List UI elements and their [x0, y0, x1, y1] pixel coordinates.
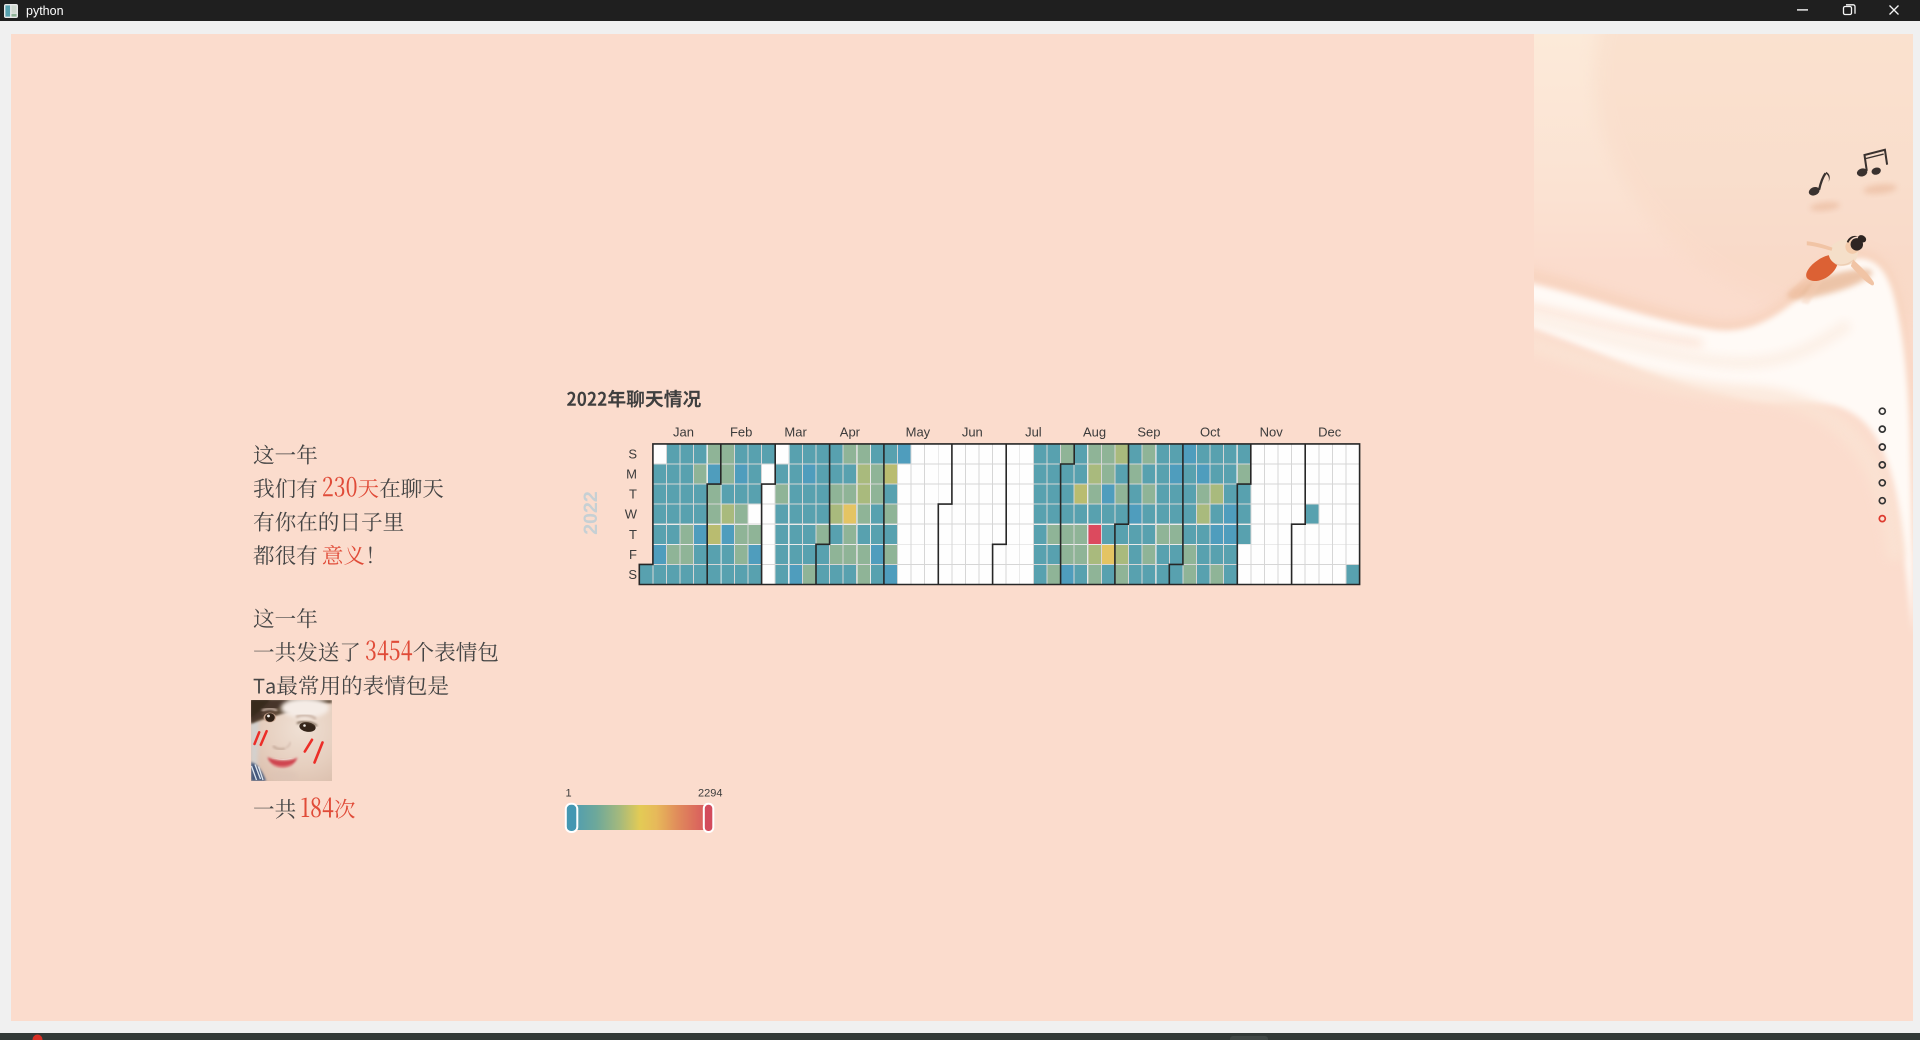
svg-text:Apr: Apr — [840, 425, 861, 440]
svg-text:2294: 2294 — [698, 788, 722, 800]
svg-text:S: S — [628, 446, 637, 461]
svg-text:1: 1 — [566, 788, 572, 800]
svg-text:Jan: Jan — [673, 425, 694, 440]
svg-text:Aug: Aug — [1083, 425, 1106, 440]
svg-text:Sep: Sep — [1137, 425, 1160, 440]
svg-text:Mar: Mar — [784, 425, 807, 440]
svg-text:Feb: Feb — [730, 425, 752, 440]
svg-text:T: T — [629, 527, 637, 542]
svg-text:Dec: Dec — [1318, 425, 1342, 440]
svg-text:Nov: Nov — [1260, 425, 1284, 440]
svg-text:M: M — [626, 467, 637, 482]
svg-text:W: W — [625, 507, 638, 522]
svg-text:Jul: Jul — [1025, 425, 1042, 440]
svg-text:Jun: Jun — [962, 425, 983, 440]
svg-text:May: May — [906, 425, 931, 440]
svg-text:Oct: Oct — [1200, 425, 1221, 440]
svg-text:S: S — [628, 567, 637, 582]
svg-text:T: T — [629, 487, 637, 502]
svg-text:2022: 2022 — [580, 491, 602, 535]
svg-text:F: F — [629, 547, 637, 562]
